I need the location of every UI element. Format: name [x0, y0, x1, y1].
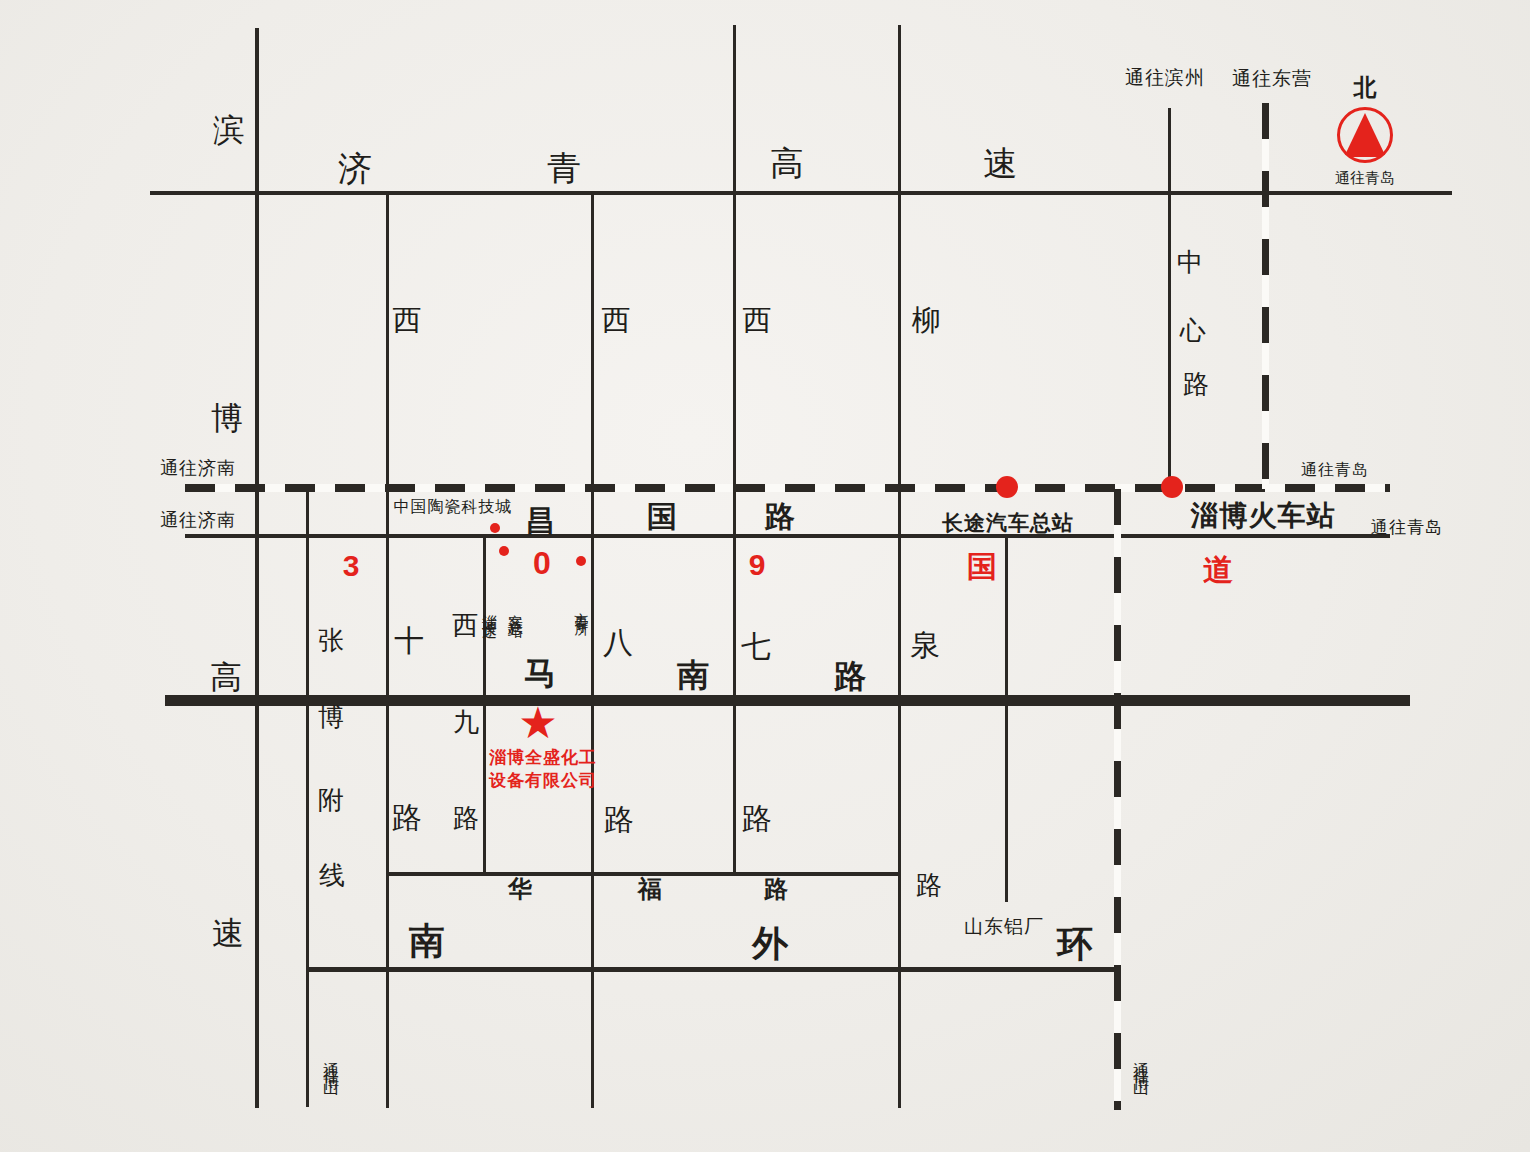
- g309-route-label: 国: [967, 552, 997, 582]
- road-name-char: 南: [677, 659, 709, 691]
- road-name-char: 路: [916, 872, 942, 898]
- road-name-char: 国: [647, 502, 677, 532]
- road-name-char: 环: [1057, 926, 1093, 962]
- road-name-char: 昌: [525, 506, 555, 536]
- road-name-char: 南: [409, 923, 445, 959]
- compass-needle-base: [1348, 155, 1382, 157]
- road-zhongxin-road: [1168, 108, 1171, 489]
- road-xiba-road: [591, 193, 594, 1108]
- road-liuquan-road: [898, 25, 901, 1108]
- road-changguo-road: [185, 534, 1390, 538]
- road-name-char: 外: [752, 926, 788, 962]
- road-name-char: 马: [524, 657, 556, 689]
- road-name-char: 泉: [910, 630, 940, 660]
- road-name-char: 速: [212, 917, 244, 949]
- landmark-label: 客运总站: [509, 602, 524, 614]
- road-name-char: 七: [741, 632, 771, 662]
- road-name-char: 济: [338, 151, 372, 185]
- road-aluminum-plant-road: [1005, 536, 1008, 902]
- road-name-char: 高: [210, 661, 242, 693]
- road-name-char: 心: [1180, 317, 1206, 343]
- road-name-char: 路: [1183, 371, 1209, 397]
- road-dongying-dashed-road: [1262, 103, 1269, 489]
- road-jiqing-expressway: [150, 191, 1452, 195]
- poi-dot: [576, 556, 586, 566]
- direction-label: 通往济南: [160, 511, 236, 529]
- road-name-char: 路: [604, 805, 634, 835]
- road-xishi-road: [386, 193, 389, 1108]
- road-xiqi-road: [733, 25, 736, 874]
- road-name-char: 高: [770, 146, 804, 180]
- road-name-char: 西: [452, 612, 478, 638]
- poi-dot: [1161, 476, 1183, 498]
- road-nanwaihuan-road: [307, 967, 1121, 972]
- road-name-char: 附: [318, 787, 344, 813]
- road-name-char: 西: [393, 306, 422, 335]
- g309-route-label: 3: [343, 551, 360, 581]
- road-name-char: 路: [453, 805, 479, 831]
- road-name-char: 路: [392, 803, 422, 833]
- road-name-char: 中: [1177, 249, 1203, 275]
- road-manan-road: [165, 695, 1410, 706]
- road-name-char: 线: [319, 862, 345, 888]
- road-name-char: 博: [318, 704, 344, 730]
- road-name-char: 十: [394, 626, 424, 656]
- road-name-char: 路: [834, 660, 866, 692]
- g309-route-label: 0: [533, 547, 551, 579]
- company-name-line: 淄博全盛化工: [489, 749, 597, 766]
- compass-needle-icon: [1345, 113, 1385, 155]
- direction-label: 通往博山: [1133, 1049, 1149, 1073]
- road-binbo-expressway: [255, 28, 259, 1108]
- road-name-char: 青: [547, 151, 581, 185]
- road-name-char: 九: [453, 709, 479, 735]
- road-name-char: 柳: [912, 306, 941, 335]
- g309-route-label: 9: [749, 550, 766, 580]
- landmark-label: 长途汽车总站: [942, 512, 1074, 533]
- poi-dot: [499, 546, 509, 556]
- road-name-char: 路: [764, 877, 788, 901]
- road-name-char: 路: [742, 804, 772, 834]
- compass-to-qingdao-label: 通往青岛: [1335, 169, 1395, 188]
- map-canvas: 北 通往青岛 济青高速滨博高速西西西柳中心路张博附线十西九八七泉路路路路路昌国路…: [0, 0, 1530, 1152]
- direction-label: 通往济南: [160, 459, 236, 477]
- road-name-char: 八: [603, 628, 633, 658]
- landmark-label: 山东铝厂: [964, 917, 1044, 936]
- company-name-line: 设备有限公司: [489, 772, 597, 789]
- direction-label: 通往东营: [1232, 69, 1312, 88]
- road-zhangbo-branch-line: [306, 489, 309, 1107]
- direction-label: 通往滨州: [1125, 68, 1205, 87]
- road-name-char: 博: [211, 402, 243, 434]
- road-name-char: 张: [318, 627, 344, 653]
- company-star-icon: ★: [518, 701, 557, 745]
- road-name-char: 福: [638, 877, 662, 901]
- direction-label: 通往青岛: [1371, 519, 1443, 536]
- g309-route-label: 道: [1203, 555, 1233, 585]
- road-railway-dashed-line: [185, 484, 1390, 492]
- poi-dot: [490, 523, 500, 533]
- landmark-label: 淄博火车站: [1191, 502, 1336, 530]
- direction-label: 通往博山: [323, 1049, 339, 1073]
- road-name-char: 华: [508, 877, 532, 901]
- road-name-char: 速: [983, 146, 1017, 180]
- compass: 北 通往青岛: [1318, 76, 1412, 188]
- landmark-label: 淄博长途: [483, 603, 498, 615]
- poi-dot: [996, 476, 1018, 498]
- road-boshan-dashed-road: [1114, 489, 1121, 1110]
- road-name-char: 西: [602, 306, 631, 335]
- road-xijiu-road: [483, 536, 486, 874]
- direction-label: 通往青岛: [1301, 462, 1369, 478]
- landmark-label: 市看守所: [575, 601, 589, 613]
- landmark-label: 中国陶瓷科技城: [394, 499, 513, 515]
- compass-north-label: 北: [1354, 76, 1377, 99]
- compass-icon: [1337, 107, 1393, 163]
- road-name-char: 滨: [213, 114, 245, 146]
- road-name-char: 路: [765, 502, 795, 532]
- road-name-char: 西: [743, 306, 772, 335]
